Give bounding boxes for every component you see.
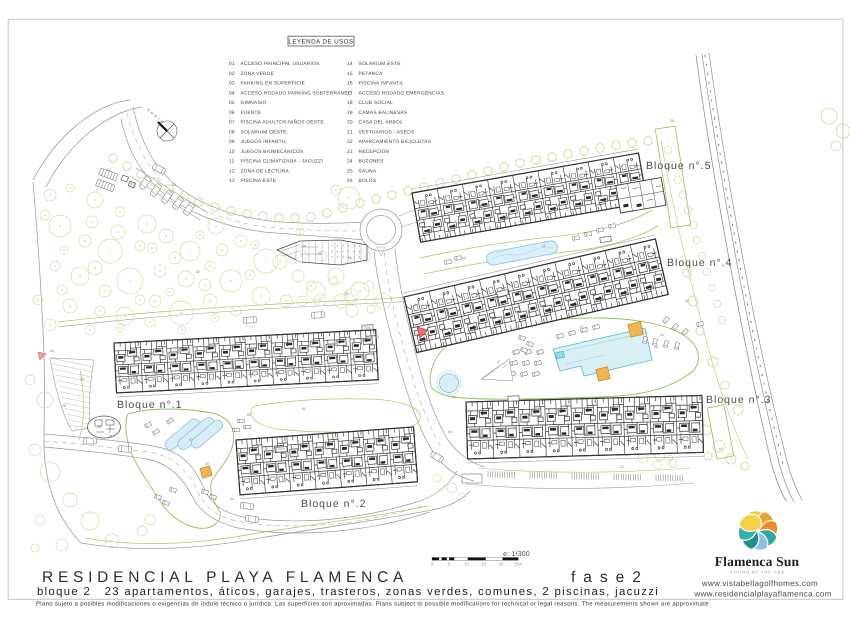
svg-text:01: 01 xyxy=(229,61,235,67)
svg-text:CASA DEL ÁRBOL: CASA DEL ÁRBOL xyxy=(359,119,403,126)
svg-text:PISCINA ESTE: PISCINA ESTE xyxy=(241,178,277,184)
svg-text:BOLOS: BOLOS xyxy=(359,178,377,184)
svg-text:PARKING EN SUPERFICIE: PARKING EN SUPERFICIE xyxy=(241,81,306,87)
svg-text:07: 07 xyxy=(189,438,193,442)
svg-text:22: 22 xyxy=(107,168,111,172)
svg-text:SOLARIUM ESTE: SOLARIUM ESTE xyxy=(359,61,401,67)
svg-text:04: 04 xyxy=(414,303,418,307)
svg-text:02: 02 xyxy=(302,407,306,411)
svg-text:19: 19 xyxy=(347,110,353,116)
svg-text:06: 06 xyxy=(229,110,235,116)
svg-text:25: 25 xyxy=(347,168,353,174)
svg-text:20: 20 xyxy=(205,462,209,466)
svg-text:APARCAMIENTO BICICLETAS: APARCAMIENTO BICICLETAS xyxy=(359,139,432,145)
svg-text:SAUNA: SAUNA xyxy=(359,168,377,174)
svg-text:JUEGOS INFANTIL: JUEGOS INFANTIL xyxy=(241,139,287,145)
svg-text:25m: 25m xyxy=(514,562,523,567)
svg-text:ZONA VERDE: ZONA VERDE xyxy=(241,71,274,77)
svg-text:03: 03 xyxy=(229,81,235,87)
svg-text:02: 02 xyxy=(521,300,525,304)
svg-text:BUZONES: BUZONES xyxy=(359,159,384,165)
svg-text:17: 17 xyxy=(347,91,353,97)
svg-text:05: 05 xyxy=(229,100,235,106)
svg-text:Plano sujeto a posibles modifi: Plano sujeto a posibles modificaciones o… xyxy=(36,601,709,608)
svg-text:04: 04 xyxy=(50,349,54,353)
svg-text:24: 24 xyxy=(347,159,353,165)
svg-text:FUENTE: FUENTE xyxy=(241,110,262,116)
svg-text:Bloque n°.5: Bloque n°.5 xyxy=(646,160,711,172)
svg-text:15: 15 xyxy=(481,562,486,567)
svg-text:02: 02 xyxy=(345,292,349,296)
svg-text:04: 04 xyxy=(448,430,452,434)
svg-text:12: 12 xyxy=(229,168,235,174)
svg-text:09: 09 xyxy=(229,139,235,145)
svg-text:14: 14 xyxy=(660,333,664,337)
svg-text:LIVING BY THE SEA: LIVING BY THE SEA xyxy=(731,570,785,575)
svg-text:PISCINA CLIMATIZADA - JACUZZI: PISCINA CLIMATIZADA - JACUZZI xyxy=(241,159,324,165)
svg-text:17: 17 xyxy=(580,325,584,329)
svg-text:PISCINA ADULTOS-NIÑOS OESTE: PISCINA ADULTOS-NIÑOS OESTE xyxy=(241,119,324,126)
svg-text:GIMNASIO: GIMNASIO xyxy=(241,100,267,106)
svg-text:15: 15 xyxy=(347,71,353,77)
svg-text:22: 22 xyxy=(620,465,624,469)
svg-text:03: 03 xyxy=(348,256,352,260)
svg-text:RESIDENCIAL PLAYA FLAMENCA: RESIDENCIAL PLAYA FLAMENCA xyxy=(42,569,408,586)
svg-text:PETANCA: PETANCA xyxy=(359,71,384,77)
svg-text:19: 19 xyxy=(654,345,658,349)
svg-text:JUEGOS BIOMECÁNICOS: JUEGOS BIOMECÁNICOS xyxy=(241,148,304,155)
svg-text:10: 10 xyxy=(464,562,469,567)
svg-text:16: 16 xyxy=(452,395,456,399)
svg-text:PISCINA INFANTIL: PISCINA INFANTIL xyxy=(359,81,404,87)
svg-text:e: 1/300: e: 1/300 xyxy=(503,550,530,558)
svg-text:LEYENDA DE USOS: LEYENDA DE USOS xyxy=(288,38,353,45)
svg-text:13: 13 xyxy=(229,178,235,184)
svg-text:11: 11 xyxy=(542,244,546,248)
svg-text:03: 03 xyxy=(172,183,176,187)
svg-text:20: 20 xyxy=(347,120,353,126)
svg-text:22: 22 xyxy=(347,139,353,145)
svg-text:04: 04 xyxy=(229,91,235,97)
svg-text:ZONA DE LECTURA: ZONA DE LECTURA xyxy=(241,168,290,174)
svg-text:ACCESO RODADO PARKING SUBTERRA: ACCESO RODADO PARKING SUBTERRANEO xyxy=(241,91,352,97)
svg-text:Bloque n°.3: Bloque n°.3 xyxy=(706,394,771,406)
svg-text:01: 01 xyxy=(303,244,307,248)
svg-text:23: 23 xyxy=(347,149,353,155)
svg-text:bloque 2 23 apartamentos, át: bloque 2 23 apartamentos, áticos, garaje… xyxy=(37,586,659,598)
svg-text:16: 16 xyxy=(347,81,353,87)
svg-text:Bloque n°.2: Bloque n°.2 xyxy=(301,498,366,510)
svg-text:CAMAS BALINESAS: CAMAS BALINESAS xyxy=(359,110,408,116)
svg-text:24: 24 xyxy=(80,377,84,381)
svg-text:18: 18 xyxy=(347,100,353,106)
svg-text:ACCESO RODADO EMERGENCIAS: ACCESO RODADO EMERGENCIAS xyxy=(359,91,445,97)
svg-text:Bloque n°.4: Bloque n°.4 xyxy=(667,257,732,269)
svg-text:20: 20 xyxy=(498,562,503,567)
svg-text:26: 26 xyxy=(670,119,674,123)
svg-text:21: 21 xyxy=(347,129,353,135)
svg-text:10: 10 xyxy=(229,149,235,155)
svg-text:24: 24 xyxy=(109,434,113,438)
svg-text:11: 11 xyxy=(229,159,235,165)
svg-text:07: 07 xyxy=(229,120,235,126)
svg-text:02: 02 xyxy=(685,299,689,303)
svg-text:08: 08 xyxy=(247,413,251,417)
svg-text:14: 14 xyxy=(347,61,353,67)
svg-text:08: 08 xyxy=(229,129,235,135)
svg-text:Flamenca Sun: Flamenca Sun xyxy=(715,554,800,569)
svg-text:10: 10 xyxy=(424,290,428,294)
svg-text:02: 02 xyxy=(196,270,200,274)
svg-text:26: 26 xyxy=(347,178,353,184)
svg-text:fase2: fase2 xyxy=(571,569,649,586)
svg-text:www.residencialplayaflamenca.c: www.residencialplayaflamenca.com xyxy=(693,590,831,599)
svg-text:13: 13 xyxy=(513,327,517,331)
svg-text:02: 02 xyxy=(229,71,235,77)
svg-text:CLUB SOCIAL: CLUB SOCIAL xyxy=(359,100,394,106)
svg-text:04: 04 xyxy=(230,497,234,501)
svg-text:18: 18 xyxy=(62,404,66,408)
svg-text:12: 12 xyxy=(375,335,379,339)
svg-text:SOLARIUM OESTE: SOLARIUM OESTE xyxy=(241,129,287,135)
svg-text:www.vistabellagolfhomes.com: www.vistabellagolfhomes.com xyxy=(701,579,818,588)
svg-text:ACCESO PRINCIPAL USUARIOS: ACCESO PRINCIPAL USUARIOS xyxy=(241,61,320,67)
svg-text:12: 12 xyxy=(462,256,466,260)
svg-text:Bloque n°.1: Bloque n°.1 xyxy=(117,399,182,411)
svg-text:VESTUARIOS - ASEOS: VESTUARIOS - ASEOS xyxy=(359,129,415,135)
svg-text:13: 13 xyxy=(719,447,723,451)
svg-text:23: 23 xyxy=(97,425,101,429)
svg-text:RECEPCION: RECEPCION xyxy=(359,149,390,155)
